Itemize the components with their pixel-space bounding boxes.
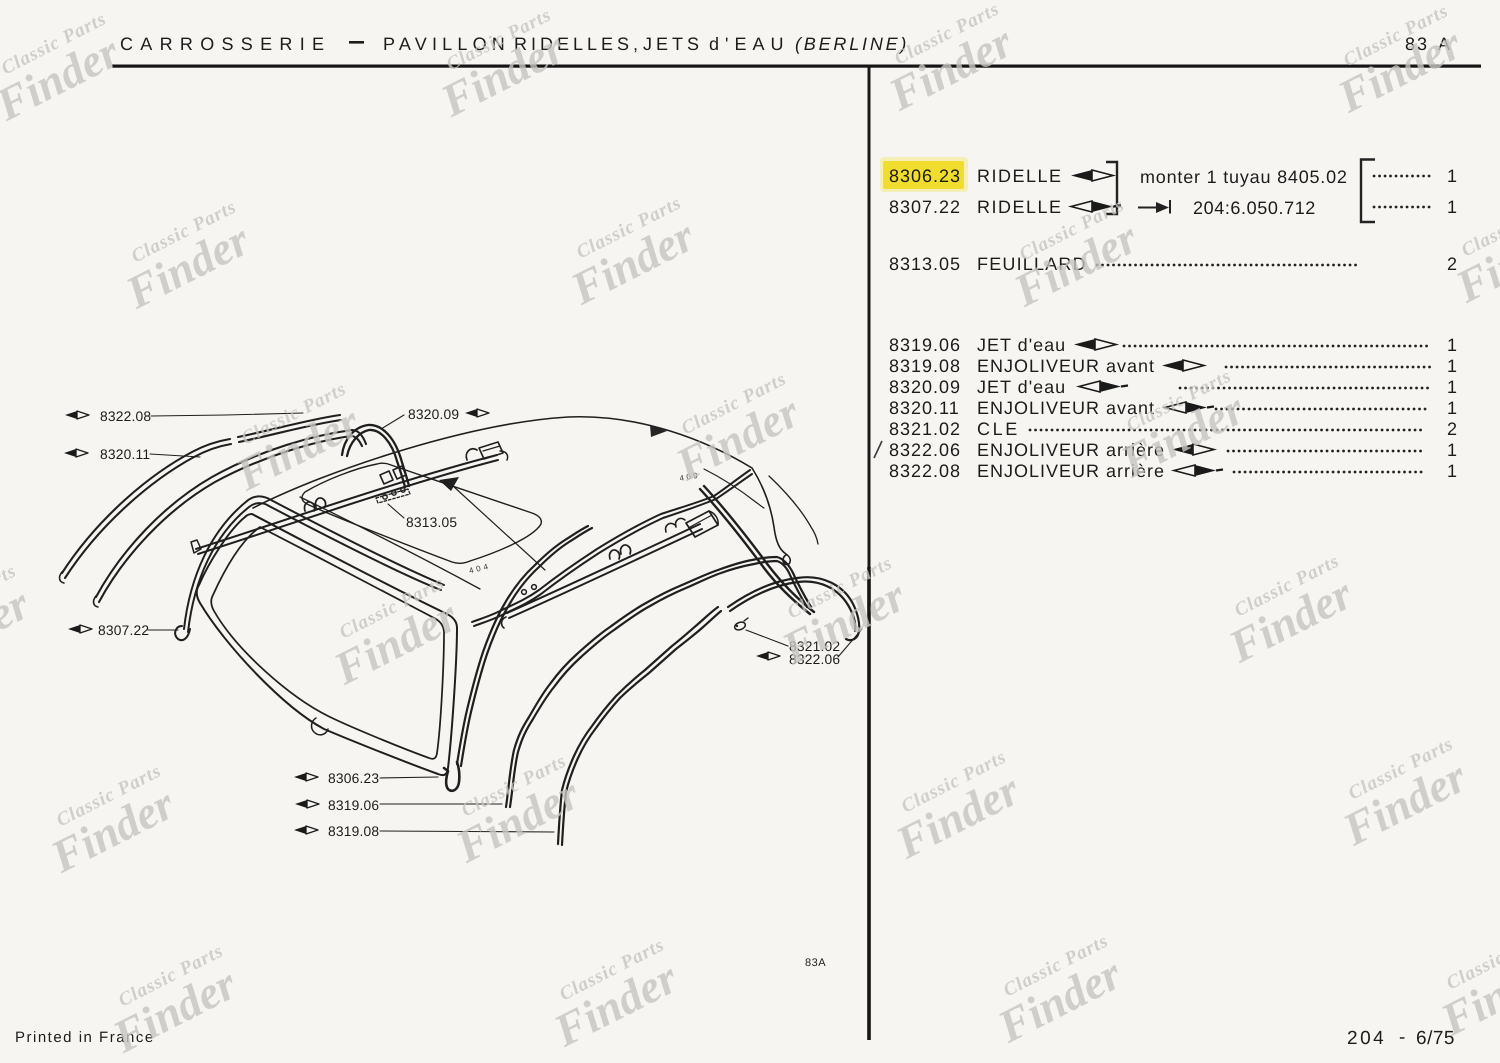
svg-text:CARROSSERIE: CARROSSERIE xyxy=(120,34,331,54)
svg-text:CLE: CLE xyxy=(977,419,1020,439)
svg-text:ENJOLIVEUR avant: ENJOLIVEUR avant xyxy=(977,356,1155,376)
svg-text:8321.02: 8321.02 xyxy=(889,419,961,439)
svg-text:1: 1 xyxy=(1447,377,1457,397)
svg-text:2: 2 xyxy=(1447,419,1457,439)
svg-text:1: 1 xyxy=(1447,398,1457,418)
svg-text:1: 1 xyxy=(1447,335,1457,355)
svg-text:8322.08: 8322.08 xyxy=(100,409,151,424)
svg-text:-: - xyxy=(1399,1027,1405,1048)
svg-text:8306.23: 8306.23 xyxy=(889,166,961,186)
svg-text:JET d'eau: JET d'eau xyxy=(977,377,1066,397)
svg-text:8313.05: 8313.05 xyxy=(406,515,457,530)
svg-text:1: 1 xyxy=(1447,356,1457,376)
svg-text:8306.23: 8306.23 xyxy=(328,771,379,786)
svg-text:d'EAU: d'EAU xyxy=(709,34,789,54)
svg-text:1: 1 xyxy=(1447,166,1457,186)
svg-text:8320.11: 8320.11 xyxy=(889,398,960,418)
svg-text:8319.08: 8319.08 xyxy=(889,356,961,376)
svg-text:204:6.050.712: 204:6.050.712 xyxy=(1193,198,1316,218)
svg-text:8313.05: 8313.05 xyxy=(889,254,961,274)
svg-text:8320.09: 8320.09 xyxy=(889,377,961,397)
svg-text:1: 1 xyxy=(1447,461,1457,481)
svg-text:8319.06: 8319.06 xyxy=(889,335,961,355)
svg-text:8320.11: 8320.11 xyxy=(100,447,150,462)
svg-text:8307.22: 8307.22 xyxy=(98,623,149,638)
svg-text:1: 1 xyxy=(1447,197,1457,217)
svg-text:8320.09: 8320.09 xyxy=(408,407,459,422)
svg-text:83A: 83A xyxy=(805,957,826,969)
svg-text:RIDELLE: RIDELLE xyxy=(977,197,1063,217)
svg-text:JET d'eau: JET d'eau xyxy=(977,335,1066,355)
svg-text:8307.22: 8307.22 xyxy=(889,197,961,217)
svg-text:monter 1 tuyau 8405.02: monter 1 tuyau 8405.02 xyxy=(1140,167,1348,187)
svg-text:RIDELLE: RIDELLE xyxy=(977,166,1063,186)
svg-text:1: 1 xyxy=(1447,440,1457,460)
svg-text:8322.06: 8322.06 xyxy=(889,440,961,460)
svg-text:JETS: JETS xyxy=(643,34,703,54)
svg-text:8322.08: 8322.08 xyxy=(889,461,961,481)
svg-text:204: 204 xyxy=(1347,1028,1386,1049)
svg-text:8319.06: 8319.06 xyxy=(328,798,379,813)
svg-text:8319.08: 8319.08 xyxy=(328,824,379,839)
